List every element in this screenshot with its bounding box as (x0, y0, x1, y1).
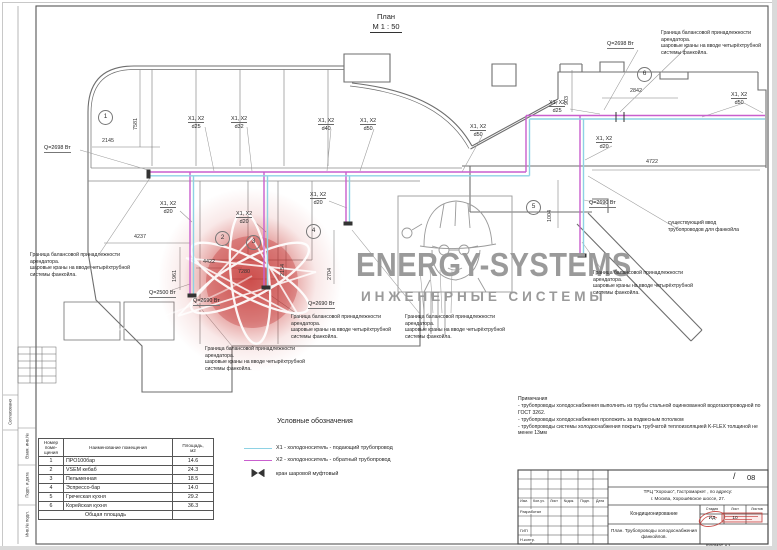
heat-load-label: Q=2690 Вт (193, 298, 220, 306)
note-line: шаровые краны на вводе четырёхтрубной (661, 43, 761, 50)
room-number: 1 (39, 457, 64, 466)
pipe-label-dia: d32 (231, 122, 247, 130)
role-label: Н.контр. (519, 537, 536, 542)
pipe-label-text: X1, X2 (549, 100, 565, 106)
pipe-label-text: X1, X2 (596, 136, 612, 142)
notes-title: Примечания (518, 396, 766, 403)
pipe-label-dia: d50 (360, 124, 376, 132)
rooms-total-label: Общая площадь (39, 511, 173, 520)
axis-bubble: 2 (215, 231, 230, 246)
dimension-text: 7280 (238, 269, 250, 275)
walls (64, 54, 766, 392)
drawing-title: План. Трубопроводы холодоснабжения фанко… (611, 528, 697, 540)
note-line: Граница балансовой принадлежности (405, 314, 505, 321)
dimension-text: 4422 (203, 259, 215, 265)
legend: Условные обозначения Х1 - холодоноситель… (240, 418, 390, 434)
rev-col-header: Кол.уч. (533, 499, 545, 503)
dimension-text: 7581 (133, 118, 139, 130)
room-area: 29.2 (173, 493, 214, 502)
room-area: 14.0 (173, 484, 214, 493)
room-number: 2 (39, 466, 64, 475)
note-line: системы фанкойла. (405, 334, 505, 341)
axis-bubble: 1 (98, 110, 113, 125)
axis-bubble: 3 (246, 235, 261, 250)
pipe-label-text: X1, X2 (318, 118, 334, 124)
boundary-note: Граница балансовой принадлежности аренда… (291, 314, 391, 340)
pipe-size-label: X1, X2d25 (188, 116, 204, 130)
boundary-note: Граница балансовой принадлежности аренда… (661, 30, 761, 56)
note-item: - трубопроводы холодоснабжения выполнить… (518, 403, 766, 417)
ball-valve-icon (244, 469, 272, 479)
legend-item-label: кран шаровой муфтовый (276, 471, 338, 477)
sheet-right-edge (772, 0, 777, 550)
axis-bubble: 6 (637, 67, 652, 82)
role-label: ГИП (519, 528, 529, 533)
watermark-logo (110, 188, 342, 372)
dimension-text: 2704 (327, 268, 333, 280)
rev-col-header: №док. (564, 499, 575, 503)
room-area: 14.6 (173, 457, 214, 466)
legend-item-label: Х1 - холодоноситель - подающий трубопров… (276, 445, 393, 451)
note-line: Граница балансовой принадлежности (291, 314, 391, 321)
legend-item-label: Х2 - холодоноситель - обратный трубопров… (276, 457, 391, 463)
stage-value: ИД (709, 516, 716, 521)
dimension-text: 2842 (630, 88, 642, 94)
pipe-label-text: X1, X2 (731, 92, 747, 98)
legend-item-x1: Х1 - холодоноситель - подающий трубопров… (244, 445, 393, 451)
role-label: Разработал (519, 509, 542, 514)
pipe-label-dia: d50 (731, 98, 747, 106)
room-number: 3 (39, 475, 64, 484)
pipe-label-dia: d20 (310, 198, 326, 206)
rooms-col-name: Наименование помещения (64, 439, 173, 457)
note-line: Граница балансовой принадлежности (593, 270, 693, 277)
pipe-size-label: X1, X2d20 (596, 136, 612, 150)
stage-header: Лист (731, 507, 739, 511)
drawing-sheet: ENERGY-SYSTEMS ИНЖЕНЕРНЫЕ СИСТЕМЫ План М… (0, 0, 777, 550)
plan-title-text: План (377, 12, 395, 21)
note-line: шаровые краны на вводе четырёхтрубной (291, 327, 391, 334)
note-line: системы фанкойла. (291, 334, 391, 341)
pipe-label-dia: d40 (318, 124, 334, 132)
pipe-size-label: X1, X2d20 (310, 192, 326, 206)
table-row: 4Эспрессо-бар14.0 (39, 484, 214, 493)
strip-label-soglasovano: Согласовано (8, 399, 13, 425)
project-address-line2: г. Москва, Хорошёвское шоссе, 27. (651, 496, 725, 501)
heat-load-label: Q=2690 Вт (308, 301, 335, 309)
heat-load-label: Q=2698 Вт (44, 145, 71, 153)
note-line: системы фанкойла. (30, 272, 130, 279)
note-item: - трубопроводы холодоснабжения проложить… (518, 417, 766, 424)
pipe-label-text: X1, X2 (188, 116, 204, 122)
boundary-note: Граница балансовой принадлежности аренда… (30, 252, 130, 278)
note-line: шаровые краны на вводе четырёхтрубной (205, 359, 305, 366)
note-line: Граница балансовой принадлежности (205, 346, 305, 353)
room-area: 36.3 (173, 502, 214, 511)
rev-col-header: Дата (596, 499, 604, 503)
rooms-total-value (173, 511, 214, 520)
sheet-code: 08 (747, 473, 755, 482)
note-item: - трубопроводы системы холодоснабжения п… (518, 424, 766, 438)
note-line: Граница балансовой принадлежности (661, 30, 761, 37)
pipe-label-text: X1, X2 (310, 192, 326, 198)
room-number: 5 (39, 493, 64, 502)
plan-scale-text: М 1 : 50 (370, 22, 401, 33)
room-area: 18.5 (173, 475, 214, 484)
legend-title: Условные обозначения (240, 418, 390, 425)
room-number: 4 (39, 484, 64, 493)
pipe-size-label: X1, X2d20 (236, 211, 252, 225)
dimension-text: 903 (564, 96, 570, 105)
note-line: системы фанкойла. (593, 290, 693, 297)
rooms-col-number: Номер поме- щения (39, 439, 64, 457)
section-name: Кондиционирование (630, 511, 677, 517)
room-name: Корейская кухня (64, 502, 173, 511)
room-area: 24.3 (173, 466, 214, 475)
pipe-size-label: X1, X2d20 (160, 201, 176, 215)
room-name: VSEM кебаб (64, 466, 173, 475)
existing-inlet-note: существующий ввод трубопроводов для фанк… (668, 220, 739, 233)
pipe-label-text: X1, X2 (160, 201, 176, 207)
pipe-label-dia: d25 (549, 106, 565, 114)
rooms-table: Номер поме- щения Наименование помещения… (38, 438, 214, 520)
note-line: существующий ввод (668, 220, 739, 227)
note-line: шаровые краны на вводе четырёхтрубной (405, 327, 505, 334)
company-stamp (698, 509, 762, 529)
dimension-text: 1004 (547, 210, 553, 222)
table-row: 2VSEM кебаб24.3 (39, 466, 214, 475)
rev-col-header: Изм. (520, 499, 528, 503)
note-line: системы фанкойла. (661, 50, 761, 57)
heat-load-label: Q=2698 Вт (607, 41, 634, 49)
room-name: ПРО100бар (64, 457, 173, 466)
dimension-text: 4237 (134, 234, 146, 240)
pipe-label-text: X1, X2 (360, 118, 376, 124)
pipe-size-label: X1, X2d50 (731, 92, 747, 106)
rooms-footer-row: Общая площадь (39, 511, 214, 520)
watermark-brand-text: ENERGY-SYSTEMS (356, 246, 632, 284)
sheet-bottom-edge (0, 546, 777, 550)
plan-title: План М 1 : 50 (358, 12, 414, 33)
pipe-size-label: X1, X2d50 (470, 124, 486, 138)
supply-pipe-line-icon (244, 448, 272, 449)
return-pipe-line-icon (244, 460, 272, 461)
legend-item-valve: кран шаровой муфтовый (244, 469, 338, 479)
rev-col-header: Подп. (580, 499, 590, 503)
pipe-label-dia: d20 (160, 207, 176, 215)
room-number: 6 (39, 502, 64, 511)
pipe-label-dia: d20 (236, 217, 252, 225)
strip-label-podp-data: Подп. и дата (25, 472, 30, 497)
pipe-size-label: X1, X2d40 (318, 118, 334, 132)
table-row: 6Корейская кухня36.3 (39, 502, 214, 511)
table-row: 5Греческая кухня29.2 (39, 493, 214, 502)
pipe-label-text: X1, X2 (236, 211, 252, 217)
axis-bubble: 4 (306, 224, 321, 239)
room-name: Греческая кухня (64, 493, 173, 502)
pipe-label-dia: d50 (470, 130, 486, 138)
dimension-text: 1961 (172, 270, 178, 282)
heat-load-label: Q=2690 Вт (589, 200, 616, 208)
note-line: Граница балансовой принадлежности (30, 252, 130, 259)
dimension-text: 2145 (102, 138, 114, 144)
rooms-header-row: Номер поме- щения Наименование помещения… (39, 439, 214, 457)
doc-slash: / (733, 471, 736, 481)
axis-bubble: 5 (526, 200, 541, 215)
stage-header: Стадия (706, 507, 718, 511)
room-name: Пельменная (64, 475, 173, 484)
boundary-note: Граница балансовой принадлежности аренда… (593, 270, 693, 296)
dimension-text: 4722 (646, 159, 658, 165)
pipe-size-label: X1, X2d50 (360, 118, 376, 132)
table-row: 1ПРО100бар14.6 (39, 457, 214, 466)
strip-label-inv-podl: Инв.№ подл. (25, 511, 30, 537)
pipe-label-dia: d25 (188, 122, 204, 130)
legend-item-x2: Х2 - холодоноситель - обратный трубопров… (244, 457, 391, 463)
dimension-text: 2154 (280, 264, 286, 276)
note-line: шаровые краны на вводе четырёхтрубной (593, 283, 693, 290)
stage-header: Листов (751, 507, 763, 511)
watermark-subtitle-text: ИНЖЕНЕРНЫЕ СИСТЕМЫ (361, 288, 607, 304)
note-line: трубопроводов для фанкойла (668, 227, 739, 234)
boundary-note: Граница балансовой принадлежности аренда… (205, 346, 305, 372)
pipe-label-dia: d20 (596, 142, 612, 150)
note-line: системы фанкойла. (205, 366, 305, 373)
pipe-label-text: X1, X2 (470, 124, 486, 130)
table-row: 3Пельменная18.5 (39, 475, 214, 484)
pipe-size-label: X1, X2d25 (549, 100, 565, 114)
boundary-note: Граница балансовой принадлежности аренда… (405, 314, 505, 340)
strip-label-vzam-inv: Взам. инв.№ (25, 433, 30, 458)
sheet-number: 10 (732, 516, 737, 521)
rev-col-header: Лист (550, 499, 558, 503)
note-line: шаровые краны на вводе четырёхтрубной (30, 265, 130, 272)
project-address-line1: ТРЦ "Хорошо", Гастромаркет , по адресу: (644, 489, 733, 494)
pipe-size-label: X1, X2d32 (231, 116, 247, 130)
rooms-col-area: Площадь, м2 (173, 439, 214, 457)
heat-load-label: Q=2500 Вт (149, 290, 176, 298)
room-name: Эспрессо-бар (64, 484, 173, 493)
pipe-label-text: X1, X2 (231, 116, 247, 122)
notes-block: Примечания - трубопроводы холодоснабжени… (518, 396, 766, 437)
